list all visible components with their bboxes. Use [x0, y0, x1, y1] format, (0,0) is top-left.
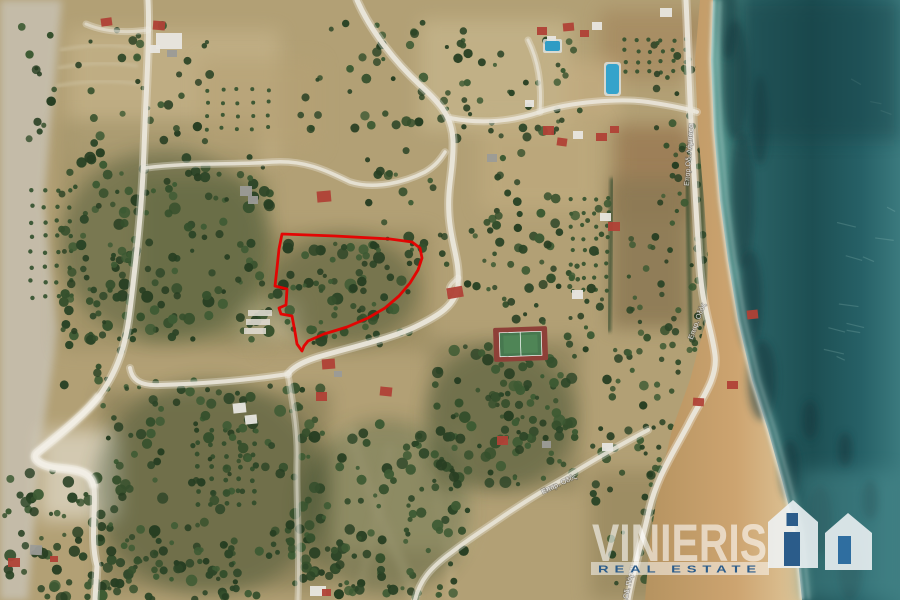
- watermark: VINIERIS REAL ESTATE: [0, 0, 900, 600]
- twin-gabled-houses-icon: [768, 500, 872, 570]
- watermark-subtitle-text: REAL ESTATE: [598, 565, 762, 576]
- listing-photo: Επαρ.Οδ. ΛάμπασαΕπαρ. ΟδόςΕπαρ.Οδ. Πόρου…: [0, 0, 900, 600]
